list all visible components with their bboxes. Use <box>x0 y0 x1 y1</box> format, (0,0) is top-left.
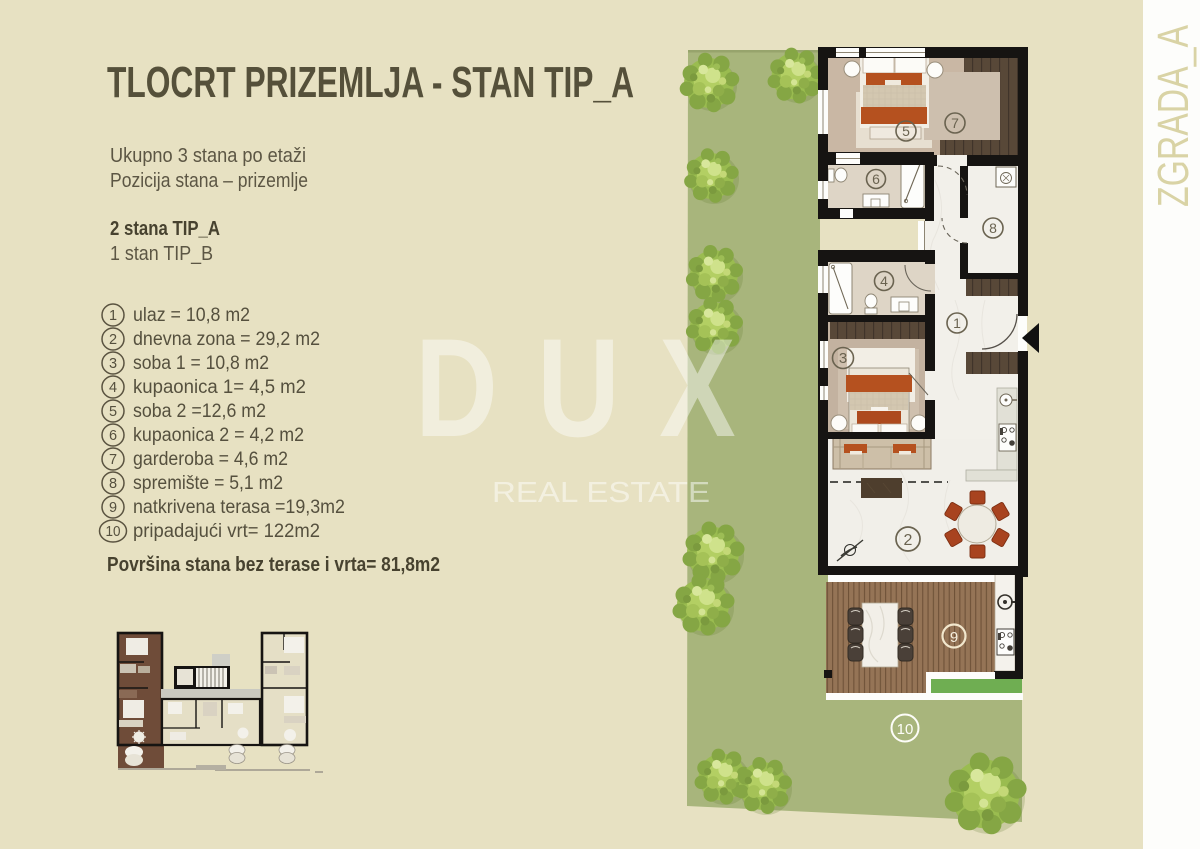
svg-text:6: 6 <box>872 171 880 187</box>
svg-text:1: 1 <box>953 315 961 331</box>
svg-text:3: 3 <box>839 350 847 367</box>
svg-text:9: 9 <box>109 500 117 516</box>
svg-text:DUX: DUX <box>415 309 775 466</box>
svg-text:5: 5 <box>109 404 117 420</box>
svg-text:2: 2 <box>109 332 117 348</box>
svg-text:TLOCRT PRIZEMLJA - STAN TIP_A: TLOCRT PRIZEMLJA - STAN TIP_A <box>107 58 634 107</box>
svg-text:ulaz = 10,8 m2: ulaz = 10,8 m2 <box>133 305 250 326</box>
svg-text:4: 4 <box>880 273 888 289</box>
svg-text:soba 2 =12,6 m2: soba 2 =12,6 m2 <box>133 401 266 422</box>
svg-text:4: 4 <box>109 380 117 396</box>
svg-text:2: 2 <box>904 532 913 549</box>
svg-text:10: 10 <box>106 524 121 540</box>
svg-text:Površina stana bez terase i vr: Površina stana bez terase i vrta= 81,8m2 <box>107 553 440 576</box>
svg-text:pripadajući vrt= 122m2: pripadajući vrt= 122m2 <box>133 521 320 542</box>
svg-text:7: 7 <box>109 452 117 468</box>
svg-text:Ukupno 3 stana po etaži: Ukupno 3 stana po etaži <box>110 145 306 167</box>
svg-text:2 stana TIP_A: 2 stana TIP_A <box>110 218 220 240</box>
svg-text:spremište = 5,1 m2: spremište = 5,1 m2 <box>133 473 283 494</box>
svg-text:Pozicija stana – prizemlje: Pozicija stana – prizemlje <box>110 170 308 192</box>
svg-text:7: 7 <box>951 115 959 131</box>
svg-text:soba 1 = 10,8 m2: soba 1 = 10,8 m2 <box>133 353 269 374</box>
svg-text:dnevna zona = 29,2 m2: dnevna zona = 29,2 m2 <box>133 329 320 350</box>
svg-text:6: 6 <box>109 428 117 444</box>
svg-text:3: 3 <box>109 356 117 372</box>
svg-text:ZGRADA_A: ZGRADA_A <box>1149 25 1198 207</box>
svg-text:1 stan TIP_B: 1 stan TIP_B <box>110 243 213 265</box>
svg-text:5: 5 <box>902 123 910 139</box>
svg-text:garderoba = 4,6 m2: garderoba = 4,6 m2 <box>133 449 288 470</box>
svg-text:1: 1 <box>109 308 117 324</box>
svg-text:REAL ESTATE: REAL ESTATE <box>492 477 710 509</box>
svg-text:kupaonica 1= 4,5 m2: kupaonica 1= 4,5 m2 <box>133 377 306 398</box>
svg-text:10: 10 <box>897 721 914 738</box>
svg-text:8: 8 <box>989 220 997 236</box>
svg-text:natkrivena terasa =19,3m2: natkrivena terasa =19,3m2 <box>133 497 345 518</box>
svg-text:kupaonica 2 = 4,2 m2: kupaonica 2 = 4,2 m2 <box>133 425 304 446</box>
svg-text:8: 8 <box>109 476 117 492</box>
svg-text:9: 9 <box>950 629 958 646</box>
